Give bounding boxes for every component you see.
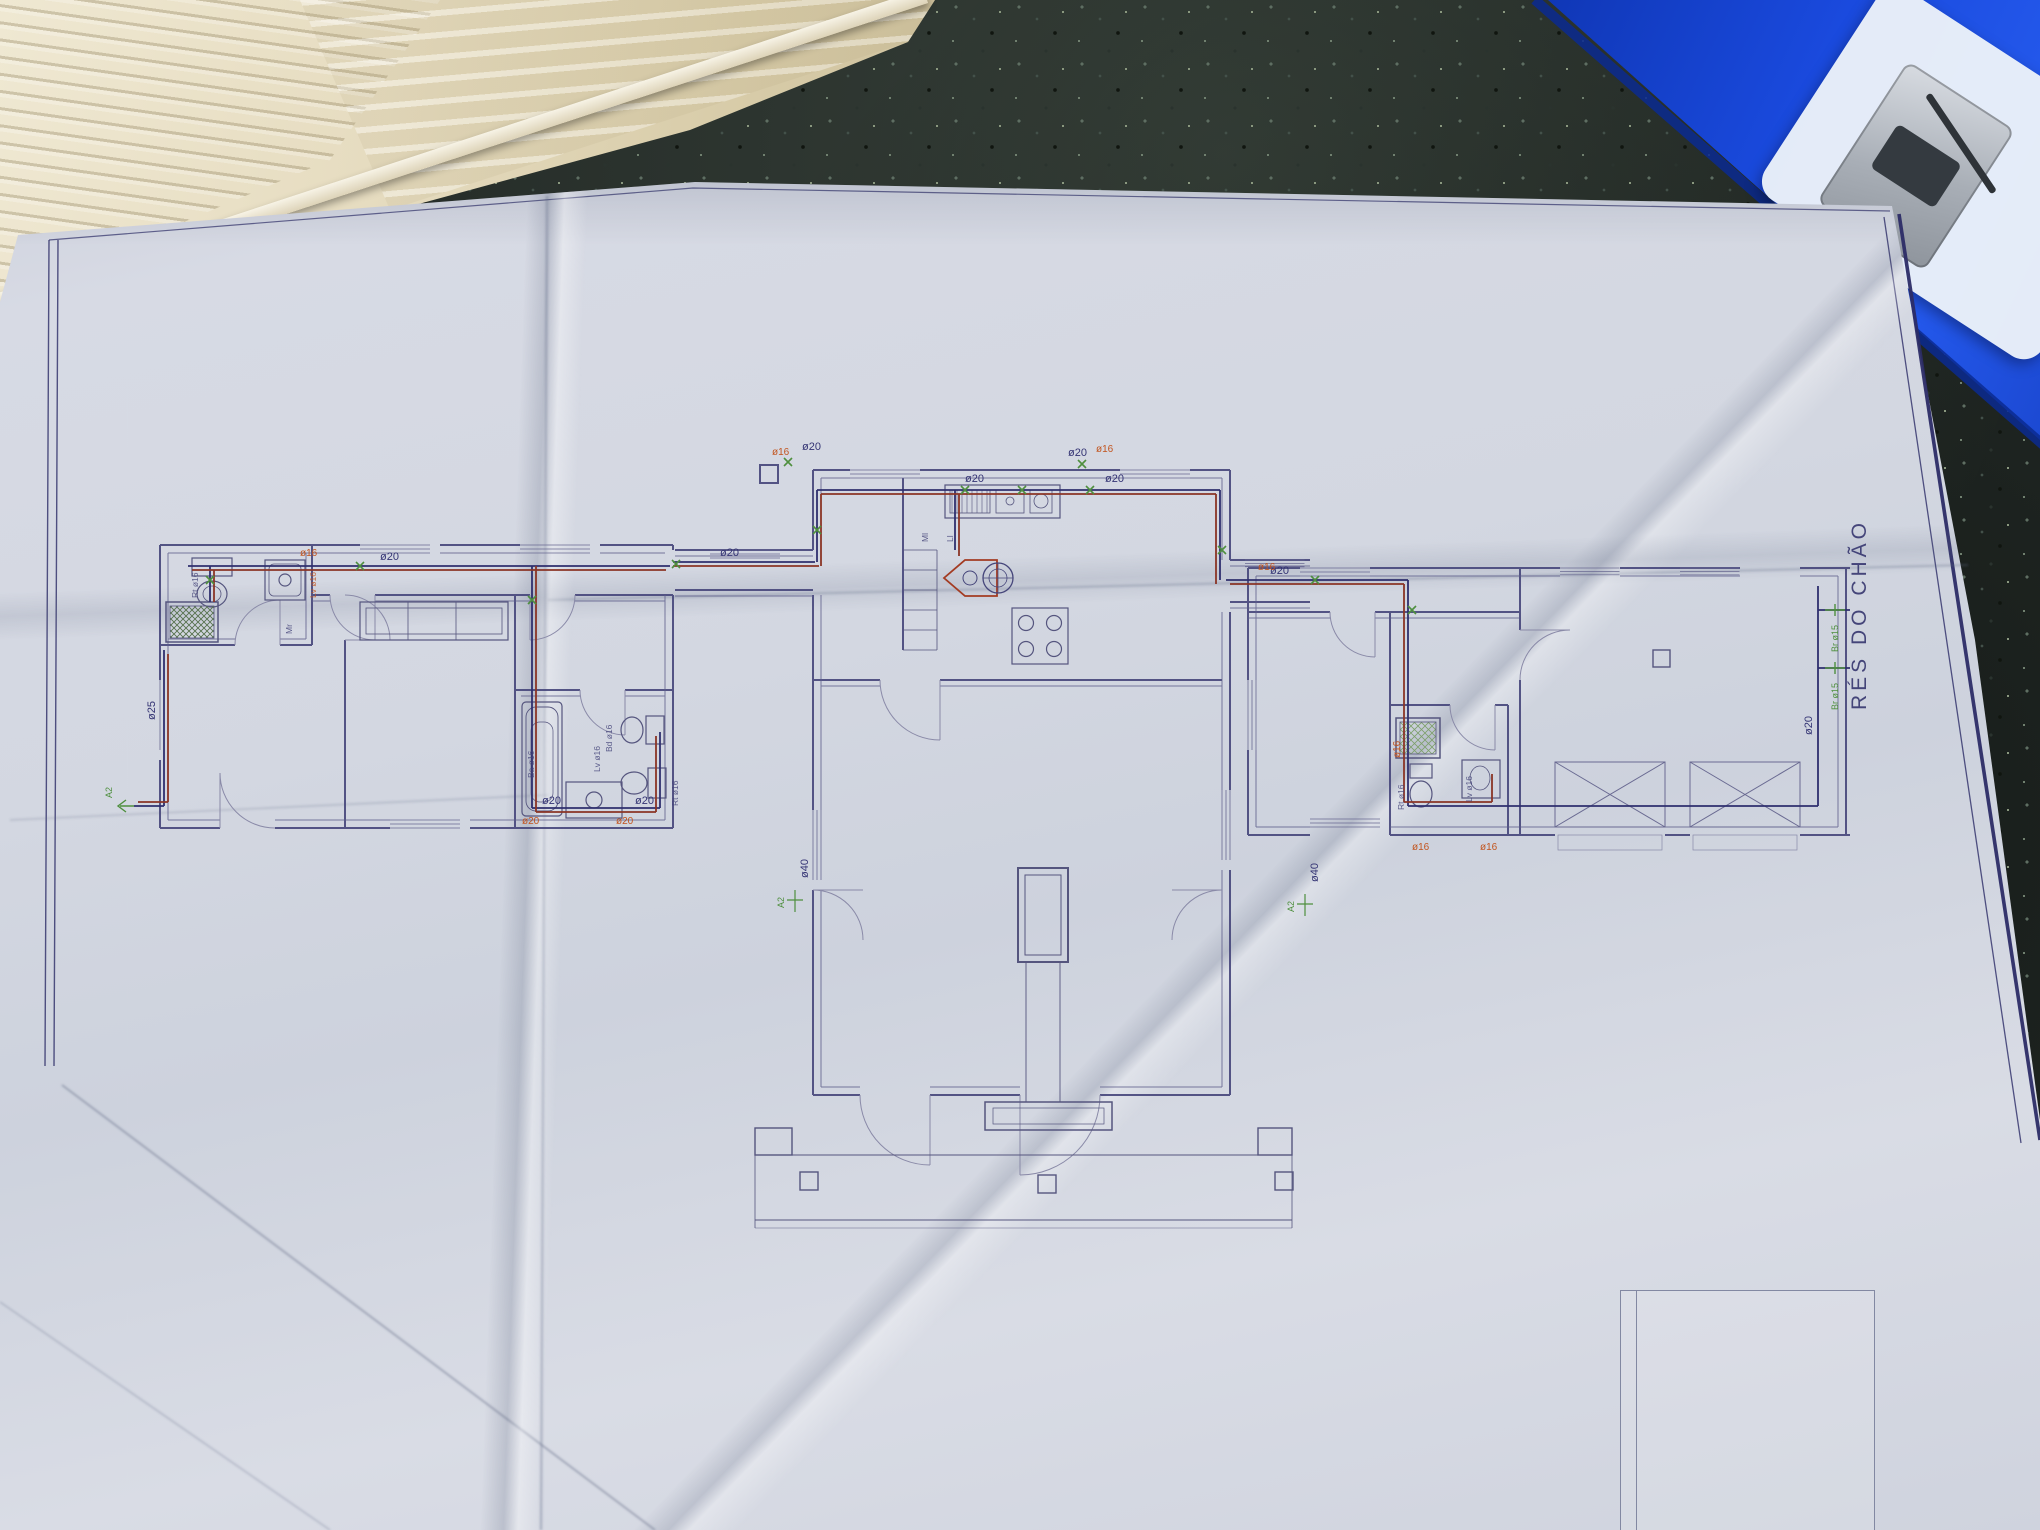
legend-row: LlPia lava-louça (1711, 1291, 1726, 1530)
label-d20: ø20 (965, 473, 984, 485)
legend-row: BrBoca de rega ou lavagem ø15mm (1681, 1291, 1696, 1530)
label-a2: A2 (1286, 901, 1296, 912)
label-d16: ø16 (1392, 740, 1403, 758)
hot-labels: ø16 ø16 ø20 ø20 ø16 ø16 ø16 ø16 ø16 (300, 444, 1498, 853)
legend-note: Nota: Todos os tubos são da série PPR PN… (1602, 1250, 1614, 1530)
legend-label: Contador (1846, 1297, 1857, 1530)
shower-left-bathroom (166, 602, 218, 642)
label-ll: Ll (945, 535, 955, 542)
garage-column (1653, 650, 1670, 667)
label-d20: ø20 (616, 816, 634, 827)
legend-row: MrMáquina de lavar roupa (1696, 1291, 1711, 1530)
legend-label: Máquina de lavar louça (1728, 1297, 1739, 1530)
label-d16: ø16 (1412, 842, 1430, 853)
legend-row: ◎Contador (1844, 1291, 1859, 1530)
legend-row: MlMáquina de lavar louça (1726, 1291, 1741, 1530)
toilet-right-bathroom (1410, 764, 1432, 807)
label-d20: ø20 (720, 547, 739, 559)
label-d20: ø20 (1105, 473, 1124, 485)
legend-row: ⋈Válvula de seccionamento (1829, 1291, 1844, 1530)
label-lv: Lv ø16 (592, 746, 602, 772)
legend-block: Nota: Todos os tubos são da série PPR PN… (1602, 1250, 1904, 1530)
label-bd: Bd ø16 (604, 724, 614, 752)
legend-row: BdBidé (1770, 1291, 1785, 1530)
legend-label: Válvula de seccionamento (1831, 1297, 1842, 1530)
legend-row: TMisturadoras (1800, 1291, 1815, 1530)
label-d20: ø20 (1068, 447, 1087, 459)
label-lv: Lv ø16 (308, 572, 318, 598)
label-rt: Rt ø16 (190, 572, 200, 598)
label-d20: ø20 (802, 441, 821, 453)
wardrobe (360, 602, 508, 640)
legend-label: Autoclismo de bacia de retrete (1668, 1297, 1679, 1530)
sheet-title: RÉS DO CHÃO (1848, 532, 1890, 710)
window-symbols (160, 470, 1740, 880)
label-a2: A2 (104, 787, 114, 798)
legend-label: Bidé (1772, 1297, 1783, 1530)
legend-label: Pia lava-louça (1713, 1297, 1724, 1530)
pipes-cold-water (134, 490, 1850, 808)
legend-row: ChChuveiro individual (1755, 1291, 1770, 1530)
label-d16: ø16 (772, 447, 790, 458)
label-d16: ø16 (300, 548, 318, 559)
door-arcs (220, 595, 1570, 1175)
legend-label: Chuveiro individual (1757, 1297, 1768, 1530)
legend-row: LvLavatório individual (1741, 1291, 1756, 1530)
label-ml: Ml (920, 533, 930, 542)
label-d40: ø40 (1309, 863, 1321, 882)
legend-table: Tabela de símbolos completa Tubo de água… (1620, 1290, 1875, 1530)
pantry-shelves (903, 550, 937, 650)
label-d20: ø20 (542, 795, 561, 807)
valve-symbols (118, 458, 1845, 916)
walls-outer (160, 465, 1850, 1095)
legend-label: Válvula de seccionamento geral (1816, 1297, 1827, 1530)
fireplace-chimney (985, 868, 1112, 1130)
label-a2: A2 (776, 897, 786, 908)
label-br15: Br ø15 (1830, 625, 1840, 652)
legend-label: Esquentador / Cilindro (1861, 1297, 1872, 1530)
porch (755, 1128, 1293, 1228)
legend-label: Banheira (1787, 1297, 1798, 1530)
legend-row: ◉Esquentador / Cilindro (1859, 1291, 1874, 1530)
label-rt: Rt ø16 (1396, 784, 1406, 810)
label-d16: ø16 (1258, 562, 1276, 573)
label-d20: ø20 (635, 795, 654, 807)
label-d16: ø16 (1480, 842, 1498, 853)
label-d40: ø40 (799, 859, 811, 878)
water-heater-symbol (944, 560, 1013, 596)
legend-rows: Tubo de água friaTubo de água quenteRtAu… (1637, 1291, 1874, 1530)
label-ba: Ba ø16 (526, 750, 536, 778)
pipes-hot-water (138, 494, 1492, 812)
label-br15: Br ø15 (1830, 683, 1840, 710)
label-d20: ø20 (522, 816, 540, 827)
bidet-main-bathroom (621, 716, 664, 744)
label-d25: ø25 (146, 701, 158, 720)
clipboard-clip-hole (1870, 123, 1962, 208)
legend-row: RtAutoclismo de bacia de retrete (1667, 1291, 1682, 1530)
legend-label: Misturadoras (1802, 1297, 1813, 1530)
label-lv: Lv ø16 (1464, 776, 1474, 802)
legend-label: Tubo de água fria (1639, 1297, 1650, 1530)
legend-label: Lavatório individual (1742, 1297, 1753, 1530)
legend-title: Tabela de símbolos completa (1621, 1291, 1637, 1530)
legend-row: Tubo de água fria (1637, 1291, 1652, 1530)
legend-row: Tubo de água quente (1652, 1291, 1667, 1530)
green-labels: Br ø15 Br ø15 A2 A2 A2 (104, 625, 1840, 912)
legend-row: BaBanheira (1785, 1291, 1800, 1530)
label-rt: Rt ø16 (670, 780, 680, 806)
legend-row: ⋈Válvula de seccionamento geral (1815, 1291, 1830, 1530)
fixtures (166, 485, 1670, 1228)
stove (1012, 608, 1068, 664)
label-d20: ø20 (380, 551, 399, 563)
photo-scene: ø20 ø20 ø20 ø20 ø20 ø20 ø20 ø20 ø20 ø25 … (0, 0, 2040, 1530)
legend-label: Tubo de água quente (1654, 1297, 1665, 1530)
label-d16: ø16 (1096, 444, 1114, 455)
label-d20: ø20 (1803, 716, 1815, 735)
legend-label: Boca de rega ou lavagem ø15mm (1683, 1297, 1694, 1530)
label-mr: Mr (284, 624, 294, 634)
legend-label: Máquina de lavar roupa (1698, 1297, 1709, 1530)
